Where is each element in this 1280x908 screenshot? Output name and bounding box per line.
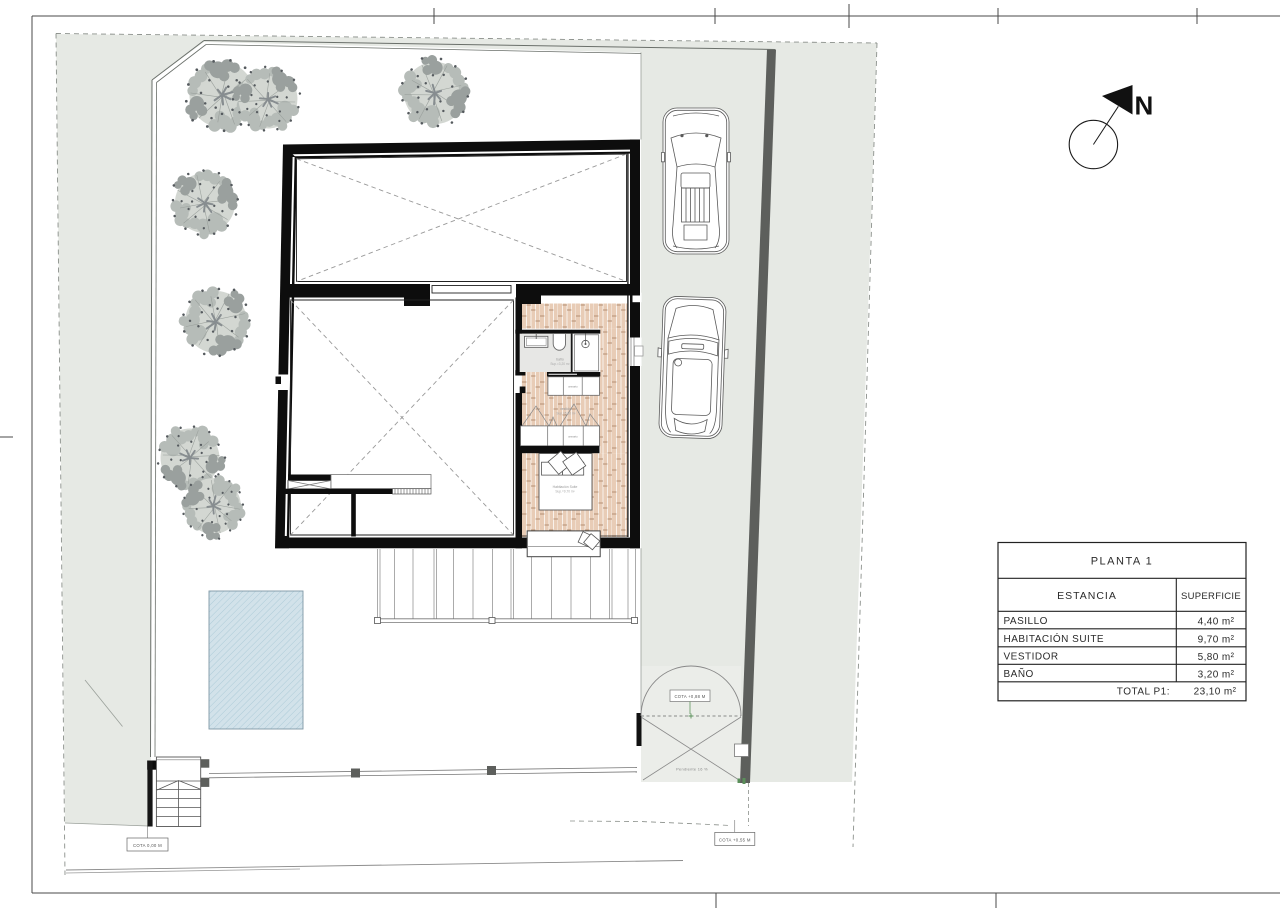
svg-text:Sup.=3,20 m²: Sup.=3,20 m² <box>550 362 569 366</box>
svg-text:baño: baño <box>556 358 564 362</box>
svg-text:PASILLO: PASILLO <box>1004 616 1048 627</box>
svg-text:9,70 m²: 9,70 m² <box>1198 635 1235 646</box>
svg-text:N: N <box>1135 91 1154 121</box>
svg-text:COTA +0,55 M: COTA +0,55 M <box>719 838 751 843</box>
svg-text:SUPERFICIE: SUPERFICIE <box>1181 591 1241 602</box>
svg-text:COTA 0,00 M: COTA 0,00 M <box>133 843 162 848</box>
svg-text:Pendiente 16 %: Pendiente 16 % <box>676 766 708 771</box>
svg-text:armario: armario <box>568 384 578 388</box>
svg-text:4,40 m²: 4,40 m² <box>1198 617 1235 628</box>
svg-text:HABITACIÓN SUITE: HABITACIÓN SUITE <box>1004 632 1105 645</box>
svg-text:PLANTA 1: PLANTA 1 <box>1091 556 1154 568</box>
svg-text:armario: armario <box>568 434 578 438</box>
svg-text:vestidor: vestidor <box>560 407 573 411</box>
svg-text:Habitación Suite: Habitación Suite <box>553 485 578 489</box>
svg-text:5,80 m²: 5,80 m² <box>1198 652 1235 663</box>
svg-text:VESTIDOR: VESTIDOR <box>1004 652 1059 663</box>
svg-text:Sup.=5,80 m²: Sup.=5,80 m² <box>556 412 575 416</box>
svg-text:ESTANCIA: ESTANCIA <box>1057 590 1117 602</box>
svg-text:BAÑO: BAÑO <box>1004 667 1034 680</box>
svg-text:Sup.=9,70 m²: Sup.=9,70 m² <box>555 490 574 494</box>
svg-text:COTA +0,88 M: COTA +0,88 M <box>674 694 705 699</box>
svg-text:23,10 m²: 23,10 m² <box>1194 687 1237 698</box>
svg-text:3,20 m²: 3,20 m² <box>1198 670 1235 681</box>
svg-text:TOTAL P1:: TOTAL P1: <box>1117 687 1170 698</box>
